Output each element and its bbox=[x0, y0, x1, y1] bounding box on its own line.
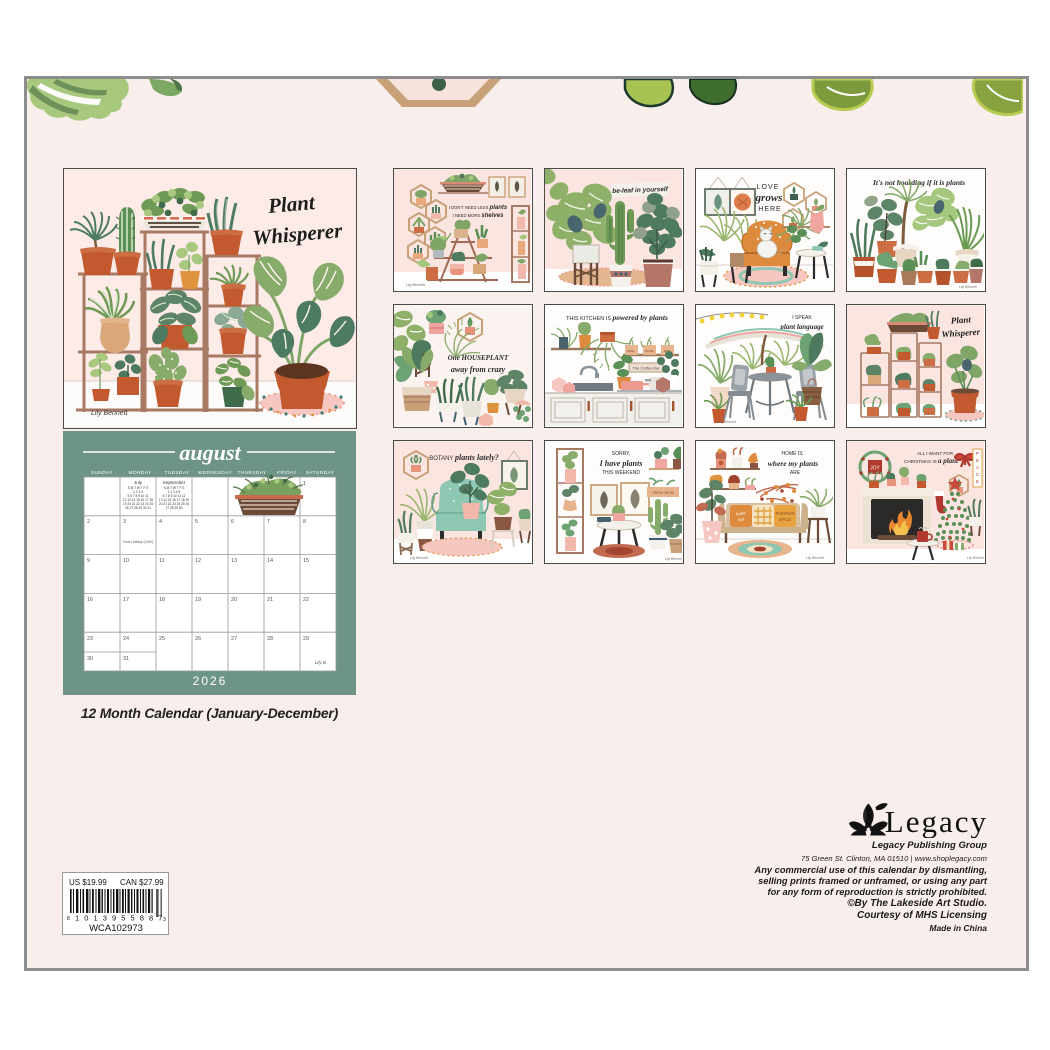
svg-text:22: 22 bbox=[303, 597, 309, 603]
svg-text:WCA102973: WCA102973 bbox=[89, 923, 143, 934]
svg-text:Lily B.: Lily B. bbox=[315, 660, 327, 665]
svg-text:THYME: THYME bbox=[644, 349, 653, 353]
svg-text:Lily Bennett: Lily Bennett bbox=[410, 556, 429, 560]
svg-text:20: 20 bbox=[231, 597, 237, 603]
svg-text:31: 31 bbox=[123, 656, 129, 662]
svg-text:I have plants: I have plants bbox=[599, 459, 643, 468]
svg-text:Plant: Plant bbox=[266, 190, 317, 218]
svg-text:Legacy: Legacy bbox=[885, 804, 987, 838]
svg-text:1: 1 bbox=[303, 481, 306, 487]
svg-text:PUMPKIN: PUMPKIN bbox=[775, 511, 794, 516]
svg-text:14: 14 bbox=[267, 558, 273, 564]
svg-text:US $19.99: US $19.99 bbox=[69, 878, 107, 887]
svg-text:21: 21 bbox=[267, 597, 273, 603]
svg-text:Whisperer: Whisperer bbox=[252, 218, 344, 250]
svg-text:24: 24 bbox=[123, 636, 129, 642]
svg-text:2: 2 bbox=[87, 519, 90, 525]
svg-text:2026: 2026 bbox=[193, 674, 228, 688]
svg-text:I SPEAK: I SPEAK bbox=[792, 315, 812, 321]
svg-text:30: 30 bbox=[87, 656, 93, 662]
svg-text:JOY: JOY bbox=[870, 466, 880, 472]
svg-text:E: E bbox=[976, 458, 979, 463]
svg-text:SPICE: SPICE bbox=[779, 517, 792, 522]
svg-text:4: 4 bbox=[159, 519, 162, 525]
svg-text:GROW GROW: GROW GROW bbox=[652, 491, 673, 495]
svg-text:Lily Bennett: Lily Bennett bbox=[665, 557, 682, 561]
svg-text:P: P bbox=[976, 451, 979, 456]
svg-text:CHRISTMAS IS a plant: CHRISTMAS IS a plant bbox=[904, 457, 959, 465]
svg-text:grows: grows bbox=[755, 192, 783, 204]
svg-text:Plant: Plant bbox=[950, 314, 971, 325]
svg-text:CAN $27.99: CAN $27.99 bbox=[120, 878, 164, 887]
svg-text:9: 9 bbox=[87, 558, 90, 564]
svg-text:5: 5 bbox=[195, 519, 198, 525]
svg-text:17: 17 bbox=[123, 597, 129, 603]
svg-text:Lily Bennett: Lily Bennett bbox=[967, 556, 984, 560]
svg-text:18: 18 bbox=[159, 597, 165, 603]
svg-text:6: 6 bbox=[231, 519, 234, 525]
svg-text:September: September bbox=[163, 480, 186, 485]
svg-text:26 27 28 29 30 31: 26 27 28 29 30 31 bbox=[125, 506, 151, 510]
svg-text:15: 15 bbox=[303, 558, 309, 564]
svg-text:Lily Bennett: Lily Bennett bbox=[91, 410, 129, 417]
svg-text:FRIDAY: FRIDAY bbox=[277, 470, 297, 476]
svg-text:august: august bbox=[179, 440, 241, 465]
svg-text:25: 25 bbox=[159, 636, 165, 642]
svg-text:SATURDAY: SATURDAY bbox=[306, 470, 335, 476]
svg-text:LOVE: LOVE bbox=[757, 184, 780, 191]
svg-text:3: 3 bbox=[123, 519, 126, 525]
svg-text:1 0 1 3 9 5 5 8 8 7: 1 0 1 3 9 5 5 8 8 7 bbox=[75, 914, 164, 923]
svg-text:Lily Bennett: Lily Bennett bbox=[406, 283, 426, 287]
svg-text:27: 27 bbox=[231, 636, 237, 642]
svg-text:7: 7 bbox=[267, 519, 270, 525]
svg-text:29: 29 bbox=[303, 636, 309, 642]
svg-text:ALL I WANT FOR: ALL I WANT FOR bbox=[917, 451, 954, 456]
svg-text:July: July bbox=[134, 480, 143, 485]
svg-text:THURSDAY: THURSDAY bbox=[237, 470, 267, 476]
svg-text:where my plants: where my plants bbox=[768, 459, 819, 468]
svg-text:3: 3 bbox=[163, 917, 166, 923]
svg-text:26: 26 bbox=[195, 636, 201, 642]
svg-text:Lily Bennett: Lily Bennett bbox=[806, 556, 825, 560]
svg-text:away from crazy: away from crazy bbox=[451, 365, 506, 374]
svg-text:WEDNESDAY: WEDNESDAY bbox=[198, 470, 233, 476]
svg-text:The Coffee Bar: The Coffee Bar bbox=[632, 366, 660, 371]
svg-text:19: 19 bbox=[195, 597, 201, 603]
svg-text:27 28 29 30: 27 28 29 30 bbox=[166, 506, 183, 510]
svg-text:HERE: HERE bbox=[758, 206, 781, 213]
svg-text:8: 8 bbox=[303, 519, 306, 525]
svg-text:SUNDAY: SUNDAY bbox=[91, 470, 113, 476]
svg-text:THIS WEEKEND: THIS WEEKEND bbox=[602, 470, 640, 476]
svg-text:One HOUSEPLANT: One HOUSEPLANT bbox=[448, 354, 509, 362]
svg-text:Lily Bennett: Lily Bennett bbox=[718, 420, 737, 424]
svg-text:28: 28 bbox=[267, 636, 273, 642]
svg-text:Civic Holiday (CAN): Civic Holiday (CAN) bbox=[123, 540, 153, 544]
svg-text:10: 10 bbox=[123, 558, 129, 564]
svg-text:SORRY,: SORRY, bbox=[612, 451, 630, 457]
svg-text:11: 11 bbox=[159, 558, 165, 564]
svg-text:16: 16 bbox=[87, 597, 93, 603]
svg-text:E: E bbox=[976, 479, 979, 484]
svg-text:23: 23 bbox=[87, 636, 93, 642]
svg-text:BASIL: BASIL bbox=[627, 349, 635, 353]
svg-text:ARE: ARE bbox=[790, 470, 801, 476]
svg-text:13: 13 bbox=[231, 558, 237, 564]
svg-text:8: 8 bbox=[67, 916, 70, 922]
svg-text:MONDAY: MONDAY bbox=[128, 470, 151, 476]
svg-text:TUESDAY: TUESDAY bbox=[164, 470, 190, 476]
svg-text:Lily Bennett: Lily Bennett bbox=[959, 285, 978, 289]
svg-text:HOME IS: HOME IS bbox=[781, 451, 803, 457]
svg-text:12: 12 bbox=[195, 558, 201, 564]
